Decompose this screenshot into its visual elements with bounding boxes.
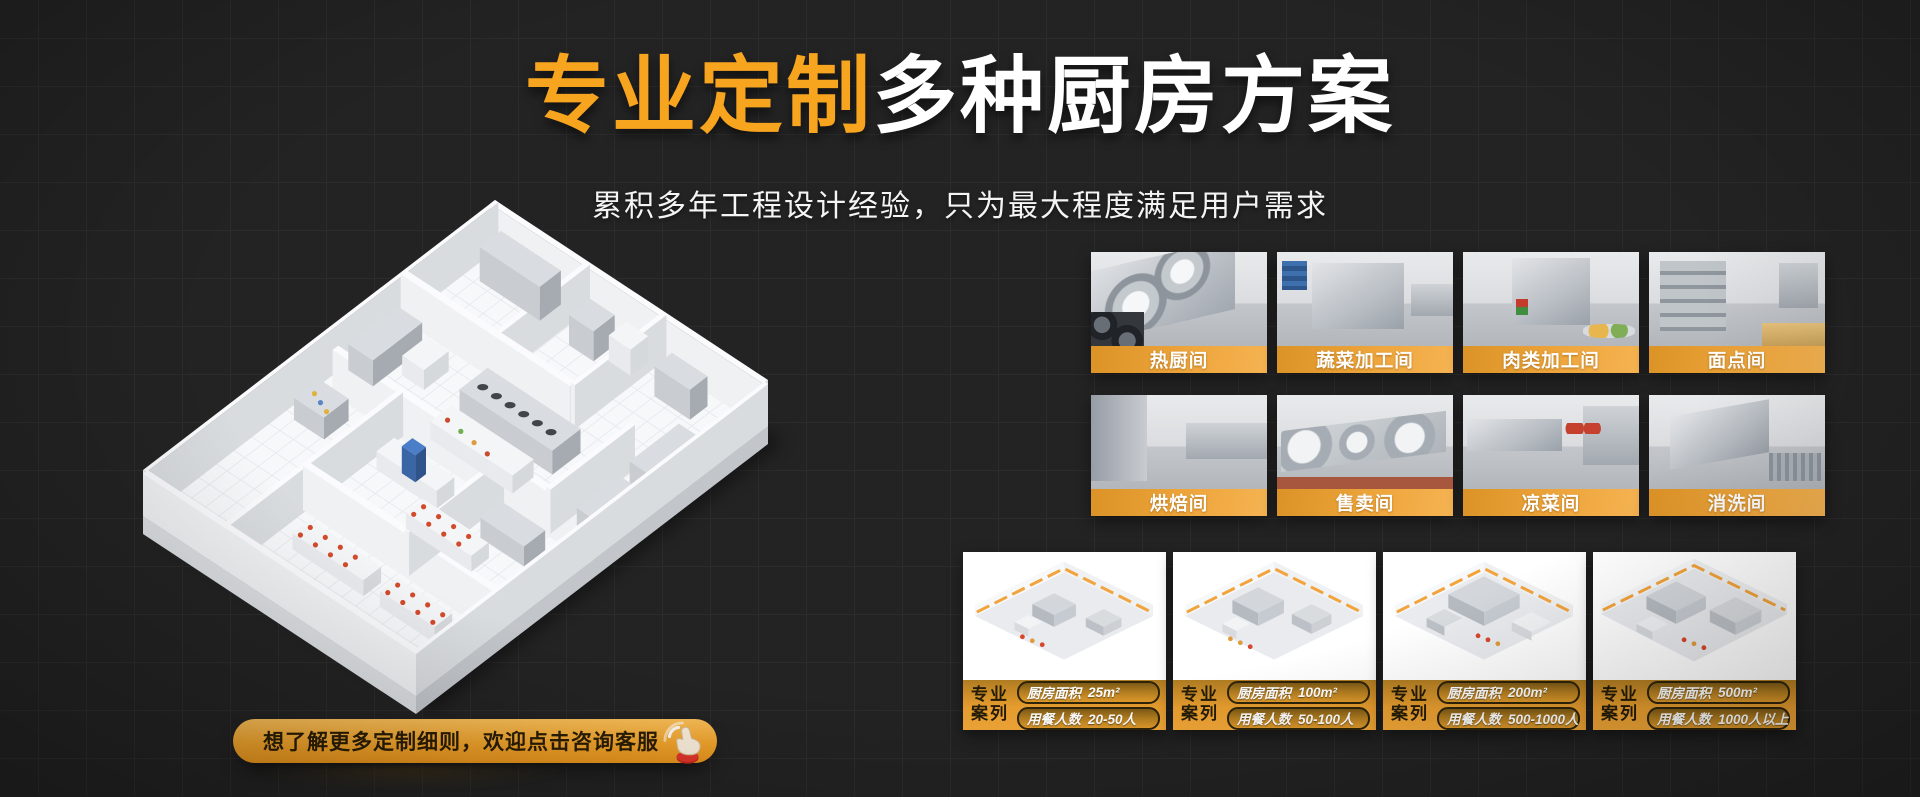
room-photo	[1277, 252, 1453, 346]
kitchen-area-pill: 厨房面积 500m²	[1647, 681, 1790, 704]
case-card-500[interactable]: 专业 案列 厨房面积 500m² 用餐人数 1000人以上	[1593, 552, 1796, 730]
room-tile-grid: 热厨间 蔬菜加工间 肉类加工间 面点间 烘焙间 售卖间 凉菜间 消洗间	[1091, 252, 1825, 516]
room-tile-selling[interactable]: 售卖间	[1277, 395, 1453, 516]
case-specs: 厨房面积 25m² 用餐人数 20-50人	[1017, 681, 1160, 730]
case-illustration	[963, 552, 1166, 680]
room-photo	[1649, 395, 1825, 489]
kitchen-equipment-shape	[1281, 411, 1446, 473]
case-card-row: 专业 案列 厨房面积 25m² 用餐人数 20-50人	[963, 552, 1796, 730]
case-card-100[interactable]: 专业 案列 厨房面积 100m² 用餐人数 50-100人	[1173, 552, 1376, 730]
photo-accent	[1762, 323, 1825, 346]
case-card-25[interactable]: 专业 案列 厨房面积 25m² 用餐人数 20-50人	[963, 552, 1166, 730]
room-tile-hot-kitchen[interactable]: 热厨间	[1091, 252, 1267, 373]
case-illustration	[1383, 552, 1586, 680]
photo-accent	[1516, 299, 1528, 315]
diners-pill: 用餐人数 20-50人	[1017, 707, 1160, 730]
case-illustration	[1593, 552, 1796, 680]
case-bar: 专业 案列 厨房面积 500m² 用餐人数 1000人以上	[1593, 680, 1796, 730]
kitchen-equipment-shape	[1091, 395, 1147, 481]
case-specs: 厨房面积 200m² 用餐人数 500-1000人	[1437, 681, 1580, 730]
kitchen-floorplan-illustration	[95, 190, 825, 746]
page-title: 专业定制多种厨房方案	[0, 48, 1920, 145]
hand-click-icon	[663, 721, 707, 765]
room-photo	[1091, 395, 1267, 489]
kitchen-equipment-shape	[1769, 453, 1822, 481]
consult-button[interactable]: 想了解更多定制细则，欢迎点击咨询客服	[233, 719, 717, 763]
room-tile-baking[interactable]: 烘焙间	[1091, 395, 1267, 516]
diners-pill: 用餐人数 500-1000人	[1437, 707, 1580, 730]
kitchen-area-pill: 厨房面积 200m²	[1437, 681, 1580, 704]
kitchen-area-pill: 厨房面积 100m²	[1227, 681, 1370, 704]
room-tile-cold-dish[interactable]: 凉菜间	[1463, 395, 1639, 516]
kitchen-equipment-shape	[1660, 261, 1727, 331]
room-photo	[1463, 252, 1639, 346]
room-photo	[1091, 252, 1267, 346]
room-tile-pastry[interactable]: 面点间	[1649, 252, 1825, 373]
diners-pill: 用餐人数 1000人以上	[1647, 707, 1790, 730]
photo-accent	[1282, 261, 1307, 289]
mini-isometric-kitchen	[1173, 552, 1376, 680]
kitchen-equipment-shape	[1670, 399, 1769, 469]
kitchen-equipment-shape	[1186, 423, 1267, 459]
kitchen-equipment-shape	[1779, 263, 1818, 308]
kitchen-equipment-shape	[1091, 312, 1144, 346]
room-tile-meat[interactable]: 肉类加工间	[1463, 252, 1639, 373]
diners-pill: 用餐人数 50-100人	[1227, 707, 1370, 730]
consult-label: 想了解更多定制细则，欢迎点击咨询客服	[263, 726, 659, 756]
case-bar: 专业 案列 厨房面积 200m² 用餐人数 500-1000人	[1383, 680, 1586, 730]
kitchen-equipment-shape	[1583, 324, 1636, 338]
case-badge: 专业 案列	[1601, 686, 1639, 723]
room-photo	[1649, 252, 1825, 346]
case-illustration	[1173, 552, 1376, 680]
photo-accent	[1277, 477, 1453, 489]
room-label: 蔬菜加工间	[1277, 346, 1453, 373]
kitchen-equipment-shape	[1583, 406, 1639, 464]
mini-isometric-kitchen	[963, 552, 1166, 680]
room-label: 售卖间	[1277, 489, 1453, 516]
room-tile-vegetable[interactable]: 蔬菜加工间	[1277, 252, 1453, 373]
case-specs: 厨房面积 500m² 用餐人数 1000人以上	[1647, 681, 1790, 730]
kitchen-equipment-shape	[1411, 284, 1453, 316]
room-label: 凉菜间	[1463, 489, 1639, 516]
kitchen-area-pill: 厨房面积 25m²	[1017, 681, 1160, 704]
case-badge: 专业 案列	[971, 686, 1009, 723]
kitchen-equipment-shape	[1512, 258, 1589, 326]
title-rest: 多种厨房方案	[873, 49, 1395, 143]
case-badge: 专业 案列	[1181, 686, 1219, 723]
case-specs: 厨房面积 100m² 用餐人数 50-100人	[1227, 681, 1370, 730]
case-bar: 专业 案列 厨房面积 100m² 用餐人数 50-100人	[1173, 680, 1376, 730]
case-badge: 专业 案列	[1391, 686, 1429, 723]
case-bar: 专业 案列 厨房面积 25m² 用餐人数 20-50人	[963, 680, 1166, 730]
mini-isometric-kitchen	[1383, 552, 1586, 680]
kitchen-equipment-shape	[1467, 419, 1562, 451]
room-label: 烘焙间	[1091, 489, 1267, 516]
room-label: 热厨间	[1091, 346, 1267, 373]
room-photo	[1277, 395, 1453, 489]
kitchen-equipment-shape	[1312, 263, 1404, 329]
title-highlight: 专业定制	[525, 49, 873, 143]
photo-accent	[1565, 423, 1604, 434]
room-label: 肉类加工间	[1463, 346, 1639, 373]
mini-isometric-kitchen	[1593, 552, 1796, 680]
room-label: 消洗间	[1649, 489, 1825, 516]
cta-reflection	[250, 766, 575, 790]
room-label: 面点间	[1649, 346, 1825, 373]
room-photo	[1463, 395, 1639, 489]
room-tile-dishwashing[interactable]: 消洗间	[1649, 395, 1825, 516]
case-card-200[interactable]: 专业 案列 厨房面积 200m² 用餐人数 500-1000人	[1383, 552, 1586, 730]
